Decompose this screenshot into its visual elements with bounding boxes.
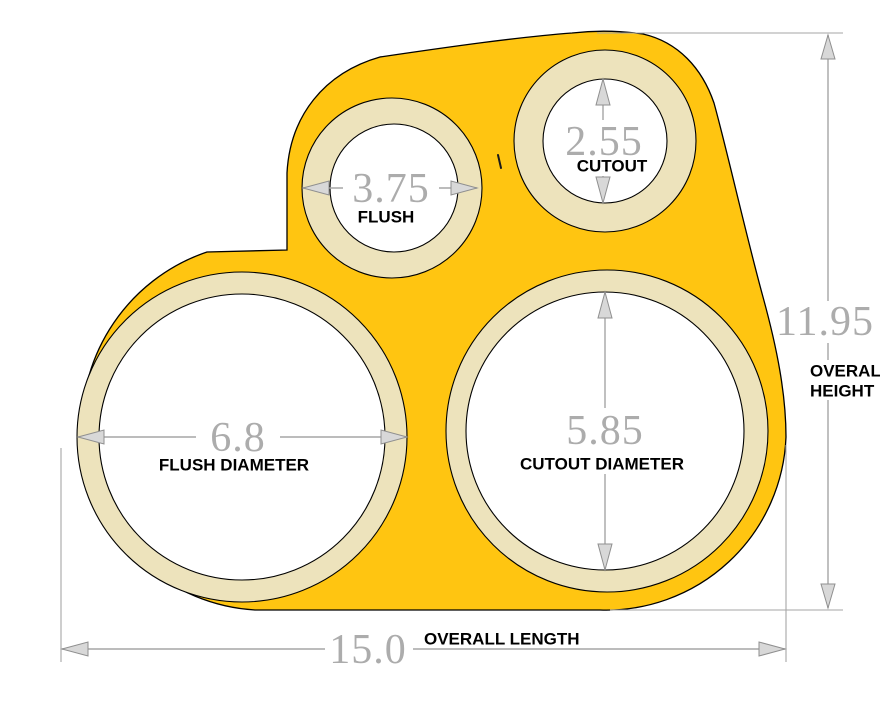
- dim-label: CUTOUT: [577, 157, 648, 176]
- dim-value: 11.95: [776, 299, 874, 345]
- arrowhead-down: [821, 584, 835, 608]
- arrowhead-left: [62, 642, 88, 656]
- dim-value: 3.75: [352, 166, 430, 212]
- dim-label: FLUSH DIAMETER: [159, 456, 309, 475]
- arrowhead-up: [821, 35, 835, 59]
- dimension-drawing-canvas: 3.75 FLUSH 2.55 CUTOUT 6.8 FLUSH DIAMETE…: [0, 0, 880, 708]
- dim-label-line1: OVERALL: [810, 362, 880, 381]
- dim-label: OVERALL LENGTH: [424, 630, 580, 649]
- dim-label: FLUSH: [358, 208, 415, 227]
- dim-value: 6.8: [210, 415, 266, 461]
- technical-drawing: 3.75 FLUSH 2.55 CUTOUT 6.8 FLUSH DIAMETE…: [0, 0, 880, 708]
- arrowhead-right: [759, 642, 785, 656]
- dim-label-line2: HEIGHT: [810, 382, 875, 401]
- dim-value: 15.0: [329, 627, 407, 673]
- dim-label: CUTOUT DIAMETER: [520, 455, 684, 474]
- dim-value: 5.85: [566, 408, 644, 454]
